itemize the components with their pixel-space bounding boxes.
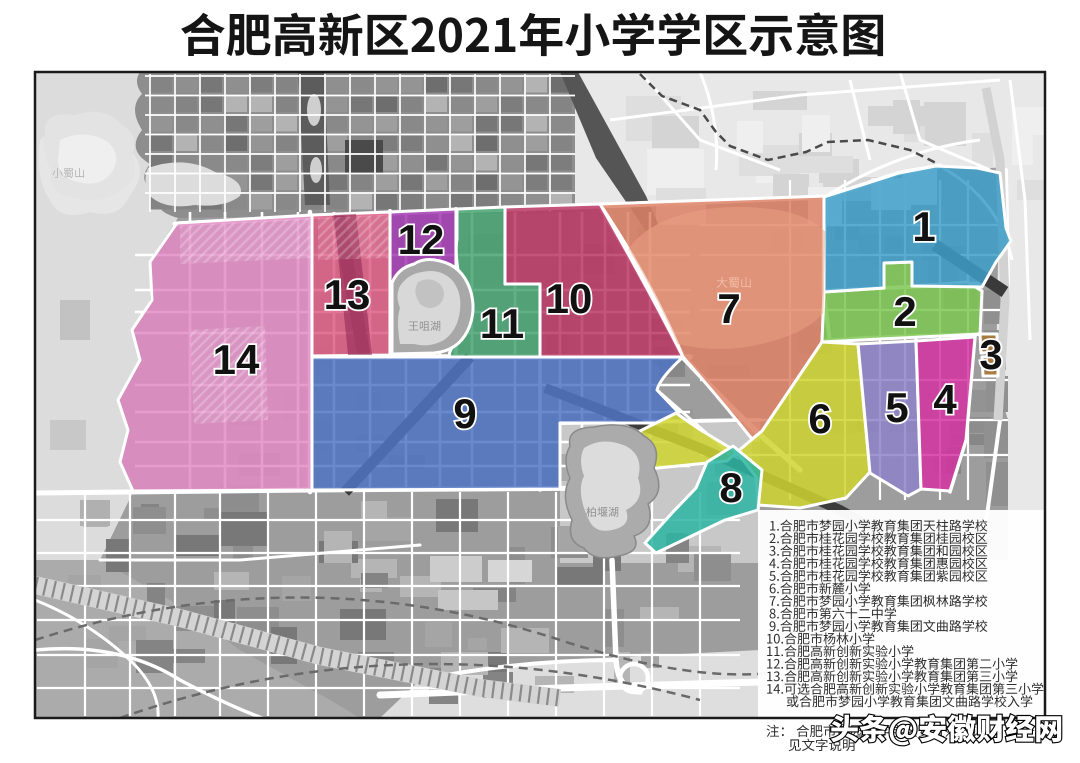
svg-text:13: 13 xyxy=(324,271,371,318)
svg-text:6: 6 xyxy=(808,395,831,442)
svg-text:1: 1 xyxy=(912,203,935,250)
svg-text:11: 11 xyxy=(480,300,524,347)
svg-text:8: 8 xyxy=(719,464,742,511)
svg-text:7: 7 xyxy=(717,285,740,332)
svg-text:10: 10 xyxy=(546,275,593,322)
svg-text:2: 2 xyxy=(893,288,916,335)
svg-text:9: 9 xyxy=(453,390,476,437)
svg-text:3: 3 xyxy=(979,331,1002,378)
svg-text:4: 4 xyxy=(933,376,957,423)
svg-text:5: 5 xyxy=(885,384,908,431)
svg-text:14: 14 xyxy=(213,336,260,383)
svg-text:12: 12 xyxy=(398,216,445,263)
